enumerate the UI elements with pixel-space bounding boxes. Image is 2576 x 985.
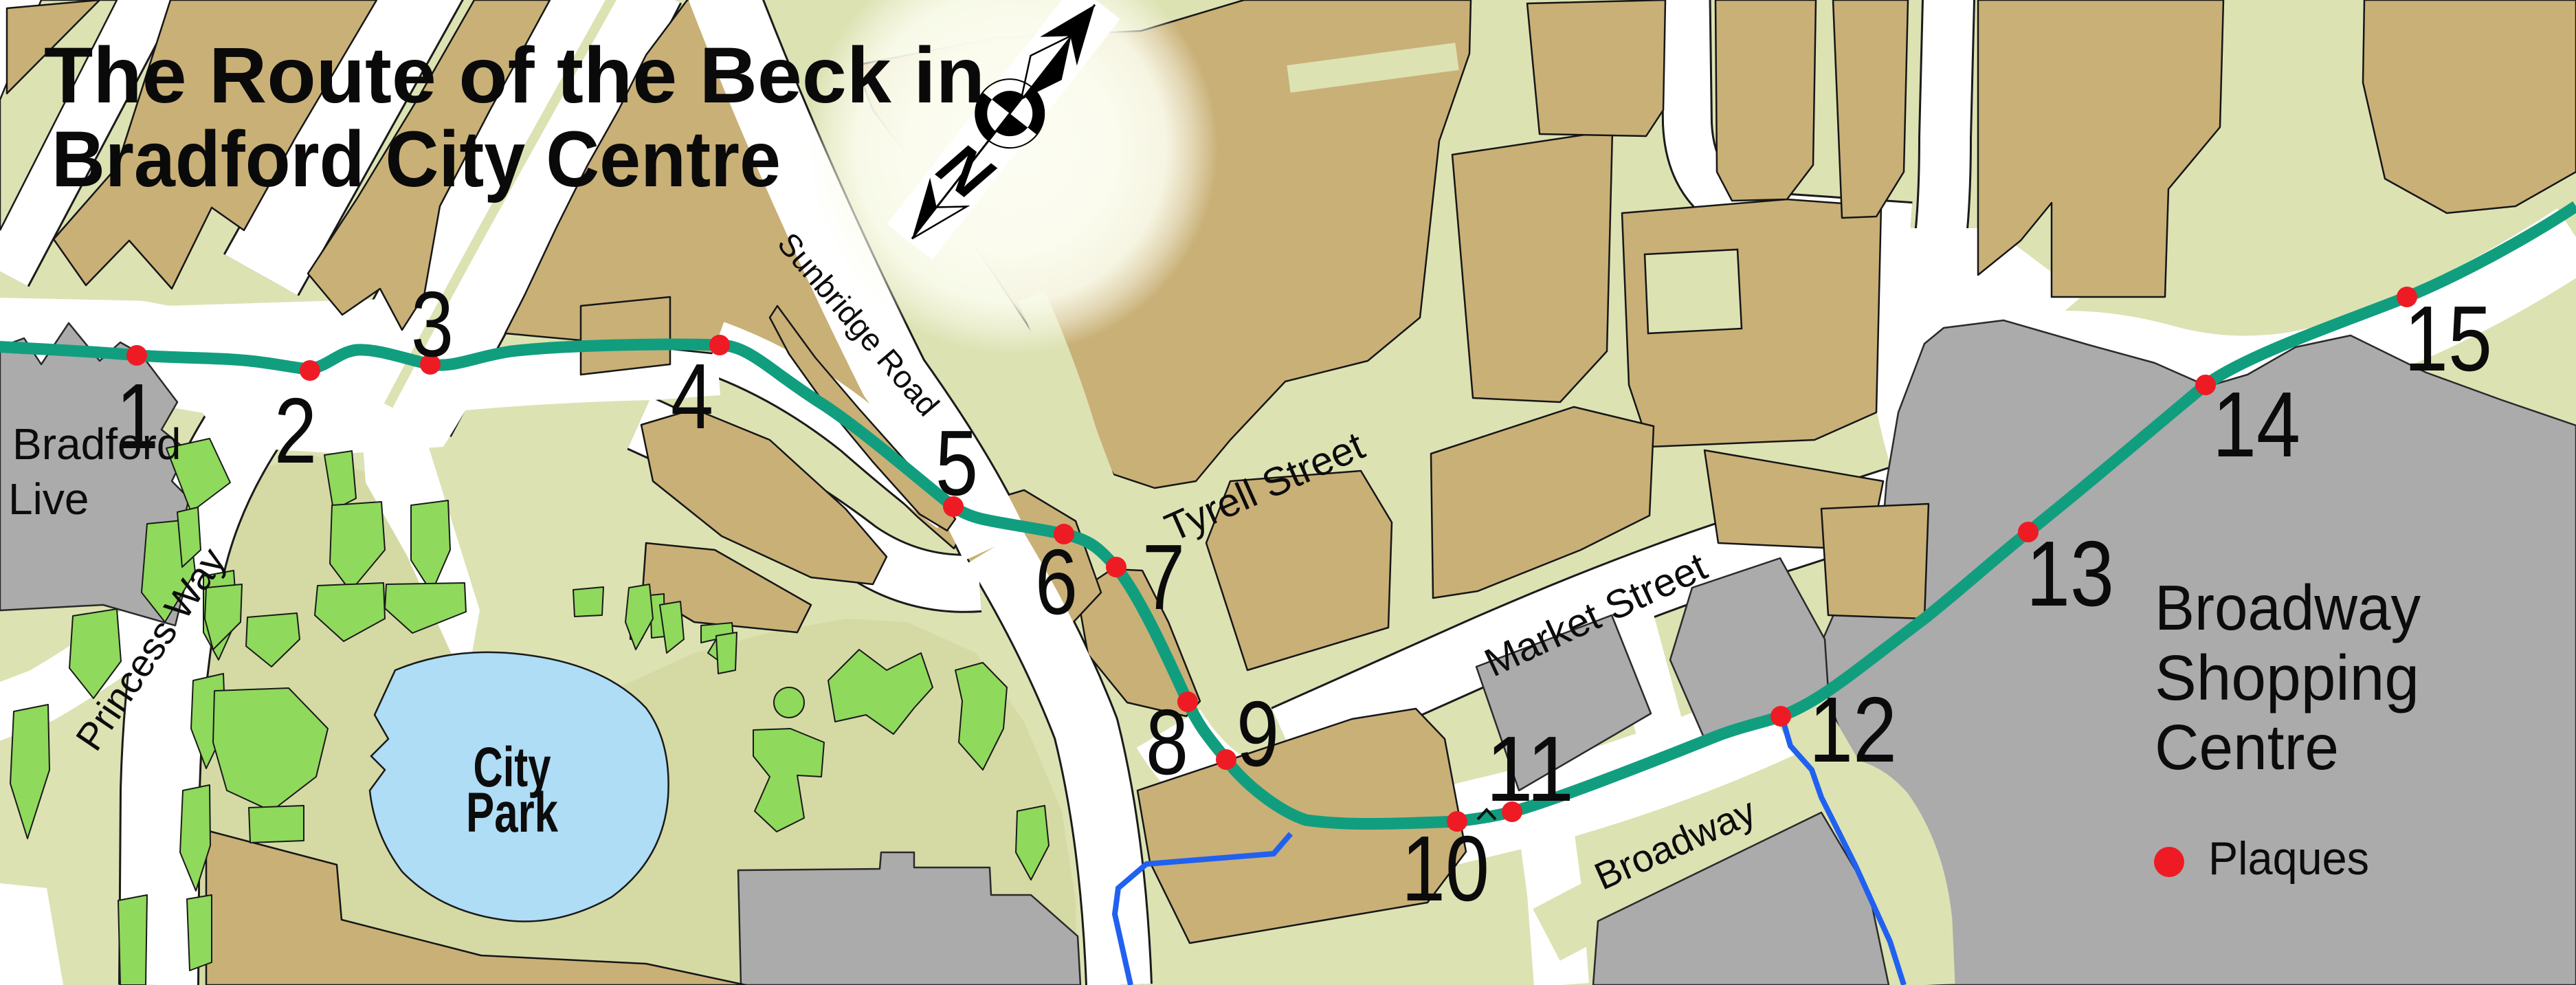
svg-text:13: 13 — [2026, 522, 2114, 626]
svg-text:Centre: Centre — [2155, 711, 2339, 783]
svg-text:Bradford City Centre: Bradford City Centre — [52, 115, 781, 203]
svg-text:Broadway: Broadway — [2155, 572, 2421, 643]
svg-text:6: 6 — [1035, 530, 1078, 634]
svg-text:5: 5 — [935, 411, 978, 515]
svg-text:10: 10 — [1401, 817, 1489, 920]
svg-text:The Route of the Beck in: The Route of the Beck in — [44, 32, 985, 120]
svg-text:2: 2 — [274, 379, 317, 483]
svg-text:8: 8 — [1146, 690, 1188, 794]
svg-text:9: 9 — [1236, 682, 1279, 786]
svg-text:Plaques: Plaques — [2208, 832, 2369, 885]
svg-text:Shopping: Shopping — [2155, 642, 2419, 713]
svg-text:14: 14 — [2212, 373, 2300, 476]
svg-text:11: 11 — [1486, 717, 1574, 821]
svg-text:Park: Park — [466, 782, 558, 844]
svg-text:15: 15 — [2404, 287, 2492, 390]
svg-text:4: 4 — [671, 344, 713, 448]
svg-text:3: 3 — [411, 272, 454, 376]
svg-text:12: 12 — [1809, 678, 1897, 782]
svg-text:Bradford: Bradford — [12, 419, 181, 469]
svg-text:Live: Live — [8, 474, 89, 524]
